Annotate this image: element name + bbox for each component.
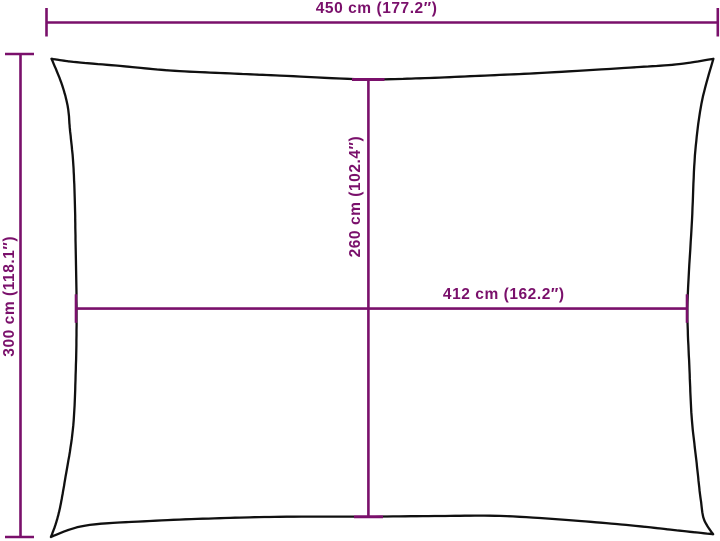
svg-text:300 cm (118.1″): 300 cm (118.1″) [1,236,18,357]
svg-text:450 cm (177.2″): 450 cm (177.2″) [316,0,438,17]
svg-text:260 cm (102.4″): 260 cm (102.4″) [347,136,364,258]
svg-text:412 cm (162.2″): 412 cm (162.2″) [443,286,565,303]
